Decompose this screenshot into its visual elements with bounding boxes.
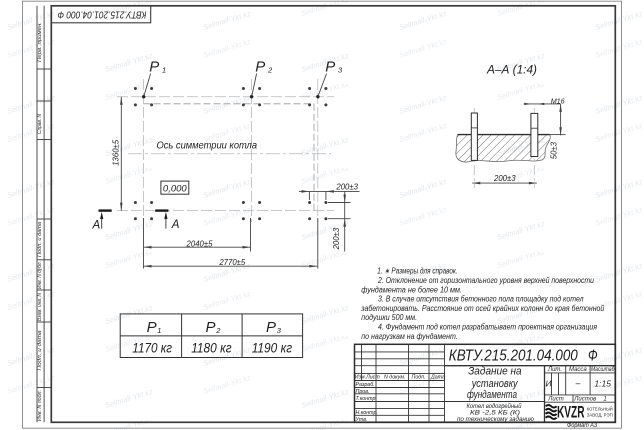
svg-text:3. В случае отсутствия бетонно: 3. В случае отсутствия бетонного пола пл… xyxy=(378,295,584,304)
svg-text:Изм.Лист: Изм.Лист xyxy=(355,375,381,381)
svg-text:–: – xyxy=(575,378,581,388)
svg-text:N докум.: N докум. xyxy=(384,375,405,381)
svg-text:Подп.: Подп. xyxy=(412,375,426,381)
svg-text:Н.контр.: Н.контр. xyxy=(356,410,378,416)
svg-text:Дата: Дата xyxy=(430,375,445,381)
svg-text:KVZR: KVZR xyxy=(557,403,585,422)
svg-text:2: 2 xyxy=(215,326,221,335)
svg-text:М16: М16 xyxy=(551,96,565,105)
svg-text:по нагрузкам на фундамент.: по нагрузкам на фундамент. xyxy=(361,332,457,341)
svg-text:КВТУ.215.201.04.000: КВТУ.215.201.04.000 xyxy=(449,348,578,365)
svg-text:200±3: 200±3 xyxy=(332,227,341,250)
svg-text:2. Отклонение от горизонтально: 2. Отклонение от горизонтального уровня … xyxy=(377,276,594,285)
svg-text:Разраб.: Разраб. xyxy=(356,382,375,388)
svg-text:50±3: 50±3 xyxy=(549,141,558,159)
svg-text:1180 кг: 1180 кг xyxy=(191,341,232,356)
svg-text:200±3: 200±3 xyxy=(335,182,358,191)
svg-text:2040±5: 2040±5 xyxy=(186,240,214,249)
svg-text:А: А xyxy=(92,219,101,231)
svg-text:Утв.: Утв. xyxy=(356,417,368,423)
svg-text:Р: Р xyxy=(206,319,216,336)
svg-text:Инв. N дубл.: Инв. N дубл. xyxy=(37,261,43,289)
svg-text:1. ∗ Размеры для справок.: 1. ∗ Размеры для справок. xyxy=(377,267,458,276)
svg-text:Перв. примен.: Перв. примен. xyxy=(37,22,43,62)
svg-text:Подп. и дата: Подп. и дата xyxy=(37,222,43,257)
svg-text:Р: Р xyxy=(325,59,335,76)
svg-text:Р: Р xyxy=(149,59,159,76)
svg-text:1360±5: 1360±5 xyxy=(111,139,120,166)
svg-text:1: 1 xyxy=(157,326,161,335)
svg-text:Р: Р xyxy=(266,319,276,336)
svg-text:Формат А3: Формат А3 xyxy=(567,422,597,429)
svg-text:2770±5: 2770±5 xyxy=(218,258,246,267)
svg-text:4. Фундамент под котел разраба: 4. Фундамент под котел разрабатывает про… xyxy=(378,323,598,332)
svg-text:1: 1 xyxy=(162,66,166,75)
svg-text:Ось симметрии котла: Ось симметрии котла xyxy=(157,141,258,152)
svg-text:установку: установку xyxy=(471,378,518,390)
svg-text:0,000: 0,000 xyxy=(163,183,187,194)
svg-text:по техническому заданию: по техническому заданию xyxy=(457,415,534,423)
svg-text:забетонировать. Расстояние от: забетонировать. Расстояние от осей крайн… xyxy=(360,304,604,313)
svg-text:Листов: Листов xyxy=(573,396,596,402)
svg-text:А: А xyxy=(171,219,180,231)
svg-text:200±3: 200±3 xyxy=(493,174,516,183)
svg-text:1: 1 xyxy=(603,396,606,402)
svg-text:1190 кг: 1190 кг xyxy=(252,341,293,356)
svg-text:Пров.: Пров. xyxy=(356,389,370,395)
svg-text:Подп. и дата: Подп. и дата xyxy=(37,331,43,371)
svg-text:2: 2 xyxy=(267,66,273,75)
svg-text:Т.контр.: Т.контр. xyxy=(356,396,377,402)
svg-text:Масса: Масса xyxy=(569,367,587,373)
svg-text:КОТЕЛЬНЫЙ: КОТЕЛЬНЫЙ xyxy=(587,405,613,412)
svg-text:1:15: 1:15 xyxy=(594,379,611,389)
svg-text:Р: Р xyxy=(255,59,265,76)
svg-text:Инв. N подл.: Инв. N подл. xyxy=(37,390,43,421)
svg-text:Справ. N: Справ. N xyxy=(37,114,43,134)
svg-text:Задание на: Задание на xyxy=(468,365,522,377)
svg-text:А–А (1:4): А–А (1:4) xyxy=(486,65,537,77)
svg-text:Р: Р xyxy=(147,319,157,336)
svg-text:фундамента: фундамента xyxy=(467,389,517,401)
svg-text:ЗАВОД, РЭП: ЗАВОД, РЭП xyxy=(587,412,613,417)
svg-text:Лист: Лист xyxy=(547,396,563,402)
svg-text:КВТУ.215.201.04.000 Ф: КВТУ.215.201.04.000 Ф xyxy=(57,9,146,20)
svg-text:подушки 500 мм.: подушки 500 мм. xyxy=(361,313,417,322)
svg-text:Лит.: Лит. xyxy=(547,367,562,373)
svg-text:фундамента не более 10 мм.: фундамента не более 10 мм. xyxy=(361,285,462,294)
svg-text:Взам. инв. N: Взам. инв. N xyxy=(37,293,43,321)
svg-text:И: И xyxy=(545,379,552,389)
svg-text:1170 кг: 1170 кг xyxy=(132,341,172,356)
svg-text:Ф: Ф xyxy=(588,348,598,365)
svg-text:Масштаб: Масштаб xyxy=(591,367,615,373)
